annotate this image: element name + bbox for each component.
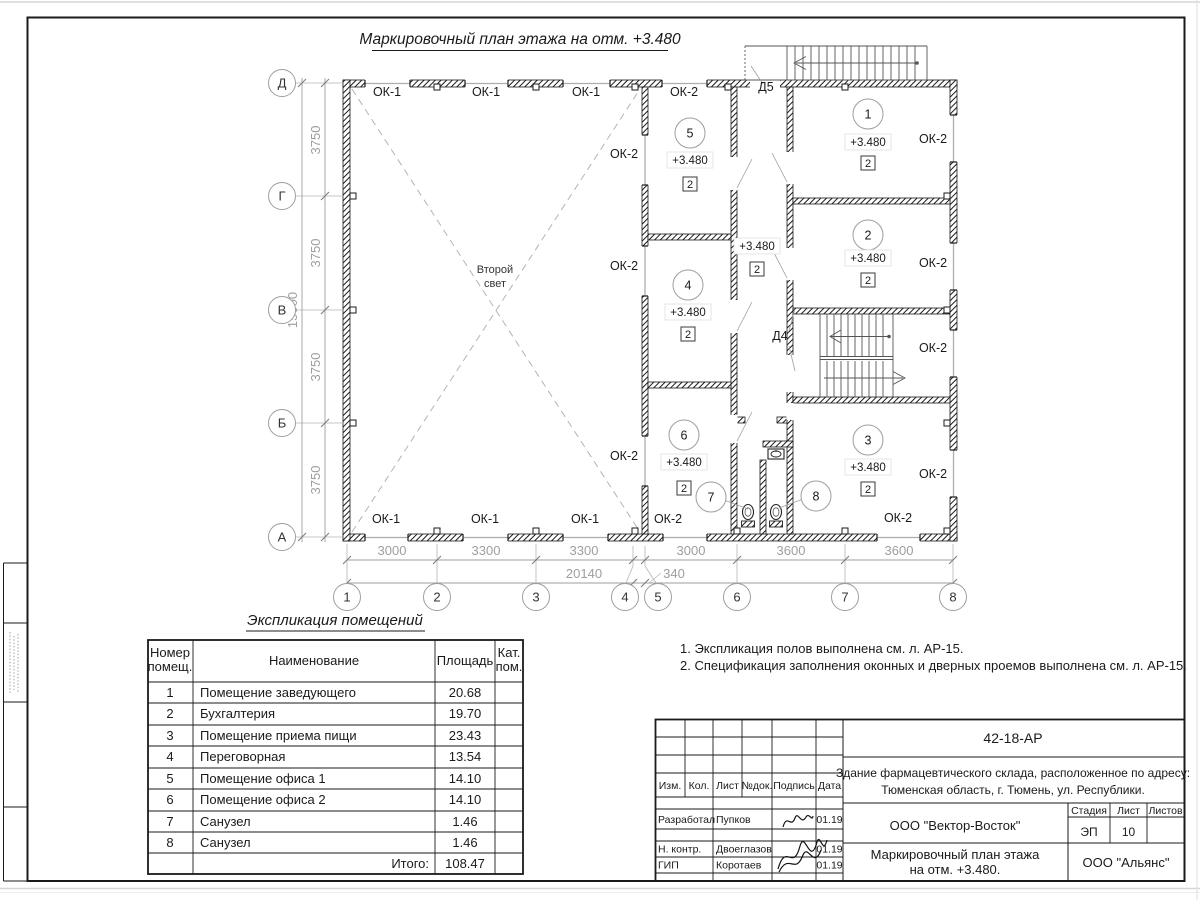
firm-name: ООО "Альянс"	[1083, 855, 1170, 870]
elevation-mark: +3.480	[850, 137, 886, 149]
room-number: 3	[865, 434, 872, 448]
plan-title: Маркировочный план этажа на отм. +3.480	[359, 31, 681, 48]
dim-label: 3000	[378, 543, 407, 558]
cell-num: 4	[166, 749, 173, 764]
axis-label: Б	[278, 416, 287, 431]
window-label: ОК-1	[572, 85, 600, 99]
window-label: ОК-2	[670, 85, 698, 99]
axis-label: 6	[733, 590, 740, 605]
window-label: ОК-2	[919, 256, 947, 270]
drawing-name-line: на отм. +3.480.	[910, 862, 1001, 877]
page-edges	[0, 0, 1200, 900]
note-line: 2. Спецификация заполнения оконных и две…	[680, 658, 1187, 673]
object-address-line: Здание фармацевтического склада, располо…	[836, 766, 1190, 780]
cell-area: 13.54	[449, 749, 482, 764]
cell-name: Помещение офиса 2	[200, 792, 326, 807]
axis-label: Д	[278, 76, 287, 91]
signature	[779, 850, 821, 872]
signature	[783, 816, 813, 827]
window-label: ОК-1	[373, 85, 401, 99]
axis-label: 5	[654, 590, 661, 605]
category-mark: 2	[865, 484, 871, 496]
window-label: ОК-2	[610, 147, 638, 161]
axis-label: 4	[621, 590, 628, 605]
dim-label: 3300	[570, 543, 599, 558]
category-mark: 2	[685, 329, 691, 341]
room-number: 5	[687, 127, 694, 141]
total-label: Итого:	[391, 856, 429, 871]
dim-label: 3750	[308, 353, 323, 382]
total-value: 108.47	[445, 856, 485, 871]
stage-value: ЭП	[1080, 825, 1097, 839]
revision-header: Изм. Кол. Лист №док. Подпись Дата	[659, 780, 842, 792]
col-header: Номер	[150, 645, 190, 660]
signer-name: Пупков	[716, 814, 751, 826]
explication-rows: 1Помещение заведующего20.68 2Бухгалтерия…	[166, 685, 485, 871]
second-light-label-1: Второй	[477, 264, 513, 276]
cell-num: 6	[166, 792, 173, 807]
drawing-name-line: Маркировочный план этажа	[871, 847, 1040, 862]
cell-name: Переговорная	[200, 749, 285, 764]
axis-label: 7	[841, 590, 848, 605]
window-label: ОК-2	[919, 132, 947, 146]
cell-num: 5	[166, 771, 173, 786]
room-number: 8	[813, 490, 820, 504]
room-number: 2	[865, 229, 872, 243]
window-label: ОК-2	[919, 341, 947, 355]
left-margin-boxes	[4, 563, 28, 881]
signers: Разработал Пупков 01.19 Н. контр. Двоегл…	[658, 814, 843, 872]
dim-label: 3300	[472, 543, 501, 558]
axis-grid-bottom: 3000 3300 3300 3000 3600 3600 20140 340 …	[334, 543, 967, 611]
stage-label: Стадия	[1071, 805, 1107, 817]
notes: 1. Экспликация полов выполнена см. л. АР…	[680, 641, 1187, 673]
category-mark: 2	[865, 158, 871, 170]
elevation-mark: +3.480	[850, 253, 886, 265]
signer-role: Н. контр.	[658, 844, 701, 856]
window-label: ОК-1	[372, 512, 400, 526]
window-label: ОК-2	[919, 467, 947, 481]
signer-name: Двоеглазов	[716, 844, 772, 856]
signer-date: 01.19	[816, 860, 842, 872]
dim-label: 3750	[308, 239, 323, 268]
explication-title: Экспликация помещений	[247, 612, 423, 629]
rev-col: №док.	[742, 780, 773, 792]
col-header: Кат.	[498, 645, 521, 660]
signer-role: ГИП	[658, 860, 679, 872]
cell-area: 19.70	[449, 706, 482, 721]
object-address-line: Тюменская область, г. Тюмень, ул. Респуб…	[881, 783, 1145, 797]
cell-area: 1.46	[452, 814, 477, 829]
cell-name: Помещение офиса 1	[200, 771, 326, 786]
cell-area: 14.10	[449, 771, 482, 786]
window-label: ОК-1	[471, 512, 499, 526]
col-header: пом.	[496, 659, 523, 674]
window-label: ОК-2	[610, 449, 638, 463]
second-light-label-2: свет	[484, 278, 506, 290]
explication-header: Номер помещ. Наименование Площадь Кат. п…	[148, 645, 523, 674]
axis-label: 8	[949, 590, 956, 605]
category-mark: 2	[754, 264, 760, 276]
drawing-sheet: Маркировочный план этажа на отм. +3.480 …	[0, 0, 1200, 900]
toilet-icon	[770, 505, 783, 528]
axis-label: А	[278, 530, 287, 545]
signer-date: 01.19	[816, 814, 842, 826]
elevation-mark: +3.480	[739, 241, 775, 253]
elevation-mark: +3.480	[672, 155, 708, 167]
sink-icon	[768, 449, 784, 459]
cell-num: 3	[166, 728, 173, 743]
toilet-icon	[742, 505, 755, 528]
note-line: 1. Экспликация полов выполнена см. л. АР…	[680, 641, 964, 656]
exterior-staircase	[745, 46, 927, 80]
room-number: 7	[708, 491, 715, 505]
col-header: Наименование	[269, 653, 359, 668]
cell-area: 1.46	[452, 835, 477, 850]
cell-name: Санузел	[200, 814, 251, 829]
signer-name: Коротаев	[716, 860, 762, 872]
doc-code: 42-18-АР	[983, 730, 1042, 746]
door-label: Д4	[772, 329, 787, 343]
elevation-mark: +3.480	[850, 462, 886, 474]
rev-col: Дата	[818, 780, 841, 792]
drawing-canvas: Маркировочный план этажа на отм. +3.480 …	[0, 0, 1200, 900]
axis-label: Г	[278, 189, 285, 204]
col-header: Площадь	[437, 653, 494, 668]
room-number: 6	[681, 429, 688, 443]
signer-role: Разработал	[658, 814, 715, 826]
sheet-label: Лист	[1117, 805, 1140, 817]
cell-area: 14.10	[449, 792, 482, 807]
cell-area: 20.68	[449, 685, 482, 700]
cell-num: 7	[166, 814, 173, 829]
floor-plan: Маркировочный план этажа на отм. +3.480 …	[269, 31, 967, 611]
cell-num: 2	[166, 706, 173, 721]
second-light-diagonals	[352, 89, 640, 532]
cell-name: Бухгалтерия	[200, 706, 275, 721]
window-label: ОК-1	[571, 512, 599, 526]
category-mark: 2	[681, 483, 687, 495]
dim-label: 3600	[885, 543, 914, 558]
rev-col: Лист	[716, 780, 739, 792]
cell-name: Санузел	[200, 835, 251, 850]
cell-num: 1	[166, 685, 173, 700]
room-number: 4	[685, 279, 692, 293]
axis-label: 3	[532, 590, 539, 605]
dim-label: 3750	[308, 126, 323, 155]
window-label: ОК-1	[472, 85, 500, 99]
window-label: ОК-2	[884, 511, 912, 525]
signer-date: 01.19	[816, 844, 842, 856]
dim-label: 3750	[308, 466, 323, 495]
sheet-number: 10	[1122, 825, 1136, 839]
elevation-mark: +3.480	[670, 307, 706, 319]
category-mark: 2	[687, 179, 693, 191]
explication-table: Экспликация помещений Номер помещ. Наиме…	[148, 612, 523, 874]
window-label: ОК-2	[654, 512, 682, 526]
dim-offset-label: 340	[663, 566, 685, 581]
elevation-mark: +3.480	[666, 457, 702, 469]
dim-label: 3000	[677, 543, 706, 558]
rev-col: Подпись	[773, 780, 815, 792]
interior-staircase	[820, 314, 905, 397]
axis-grid-left: 3750 3750 3750 3750 15000 Д Г В Б А	[269, 70, 344, 551]
cell-name: Помещение приема пищи	[200, 728, 357, 743]
dim-label: 3600	[777, 543, 806, 558]
col-header: помещ.	[148, 659, 193, 674]
dim-total-label: 20140	[566, 566, 602, 581]
axis-label: В	[278, 303, 287, 318]
axis-label: 1	[343, 590, 350, 605]
axis-label: 2	[433, 590, 440, 605]
cell-name: Помещение заведующего	[200, 685, 356, 700]
category-mark: 2	[865, 275, 871, 287]
rev-col: Изм.	[659, 780, 682, 792]
sheets-label: Листов	[1148, 805, 1183, 817]
room-number: 1	[865, 108, 872, 122]
company-name: ООО "Вектор-Восток"	[890, 818, 1021, 833]
door-label: Д5	[758, 80, 773, 94]
rev-col: Кол.	[689, 780, 710, 792]
window-label: ОК-2	[610, 259, 638, 273]
cell-area: 23.43	[449, 728, 482, 743]
cell-num: 8	[166, 835, 173, 850]
title-block: 42-18-АР Здание фармацевтического склада…	[656, 720, 1191, 882]
